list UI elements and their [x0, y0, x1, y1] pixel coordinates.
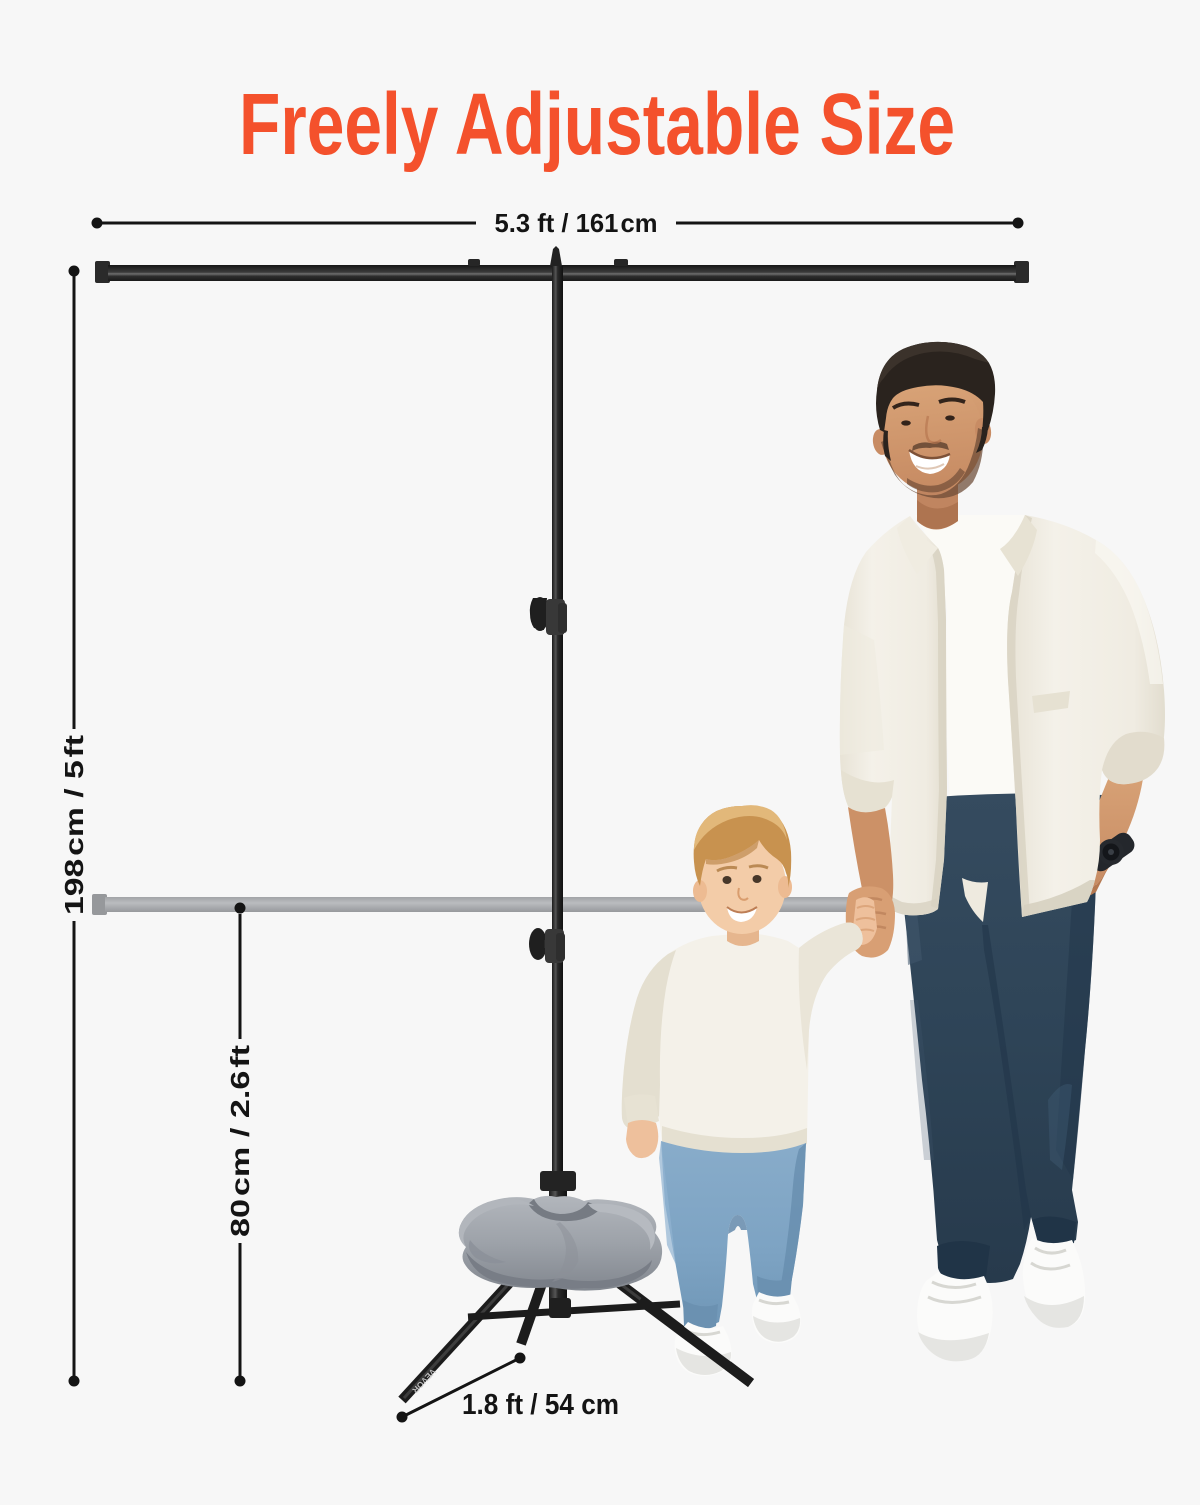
svg-text:1.8 ft / 54 cm: 1.8 ft / 54 cm — [462, 1389, 619, 1421]
svg-text:5.3 ft / 161 cm: 5.3 ft / 161 cm — [495, 208, 658, 238]
svg-text:Freely Adjustable Size: Freely Adjustable Size — [239, 76, 955, 173]
svg-text:80 cm / 2.6 ft: 80 cm / 2.6 ft — [225, 1045, 255, 1237]
svg-text:198 cm / 5 ft: 198 cm / 5 ft — [59, 735, 89, 915]
